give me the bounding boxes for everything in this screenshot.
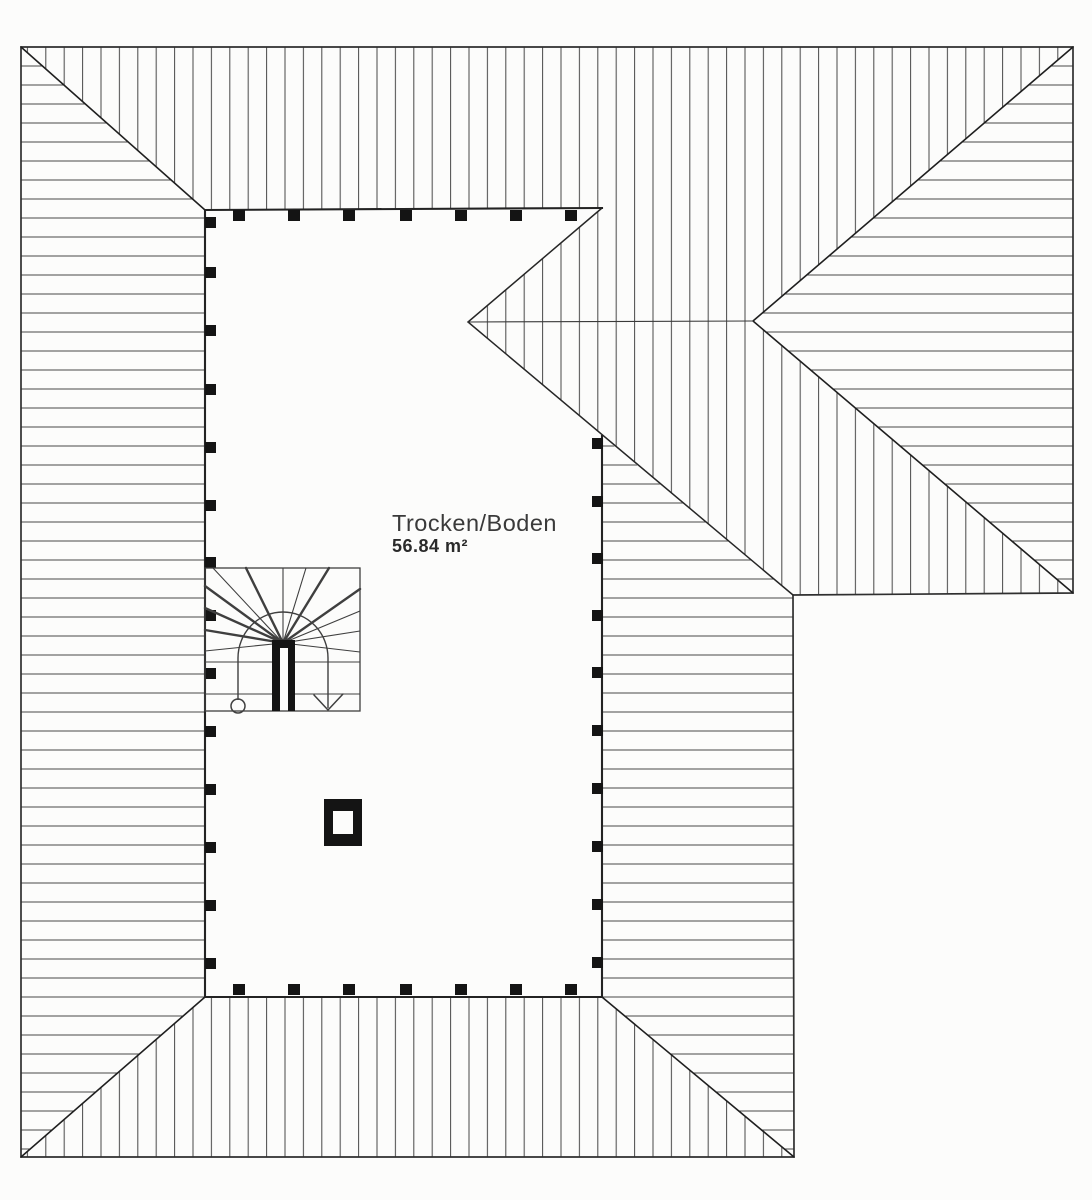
chimney-flue [333, 811, 353, 834]
wall-post [205, 958, 216, 969]
wall-post [592, 610, 603, 621]
wall-post [288, 210, 300, 221]
wall-post [510, 210, 522, 221]
wall-post [565, 984, 577, 995]
wall-post [205, 784, 216, 795]
wall-post [205, 557, 216, 568]
wall-post [400, 984, 412, 995]
wall-post [233, 210, 245, 221]
wall-post [343, 210, 355, 221]
wall-post [205, 384, 216, 395]
roof-floor-plan-drawing: Trocken/Boden 56.84 m² [0, 0, 1092, 1200]
wall-post [592, 438, 603, 449]
room-name-label: Trocken/Boden [392, 510, 557, 536]
wall-post [205, 267, 216, 278]
wall-post [205, 442, 216, 453]
roof-plane-west [21, 47, 205, 1157]
wall-post [565, 210, 577, 221]
scanned-floor-plan-page: Trocken/Boden 56.84 m² [0, 0, 1092, 1200]
wall-post [592, 553, 603, 564]
wall-post [205, 726, 216, 737]
wall-post [592, 957, 603, 968]
wall-post [205, 668, 216, 679]
wall-post [592, 899, 603, 910]
wall-post [205, 217, 216, 228]
wall-post [343, 984, 355, 995]
wall-post [455, 984, 467, 995]
room-area-label: 56.84 m² [392, 536, 468, 556]
wall-post [288, 984, 300, 995]
chimney [324, 799, 362, 846]
wall-post [592, 496, 603, 507]
wall-post [400, 210, 412, 221]
wall-post [233, 984, 245, 995]
wall-post [592, 841, 603, 852]
wall-post [205, 325, 216, 336]
wall-post [205, 842, 216, 853]
wall-post [455, 210, 467, 221]
wall-post [205, 500, 216, 511]
wall-post [592, 667, 603, 678]
wall-post [592, 783, 603, 794]
wall-post [205, 900, 216, 911]
wall-post [592, 725, 603, 736]
wall-post [510, 984, 522, 995]
